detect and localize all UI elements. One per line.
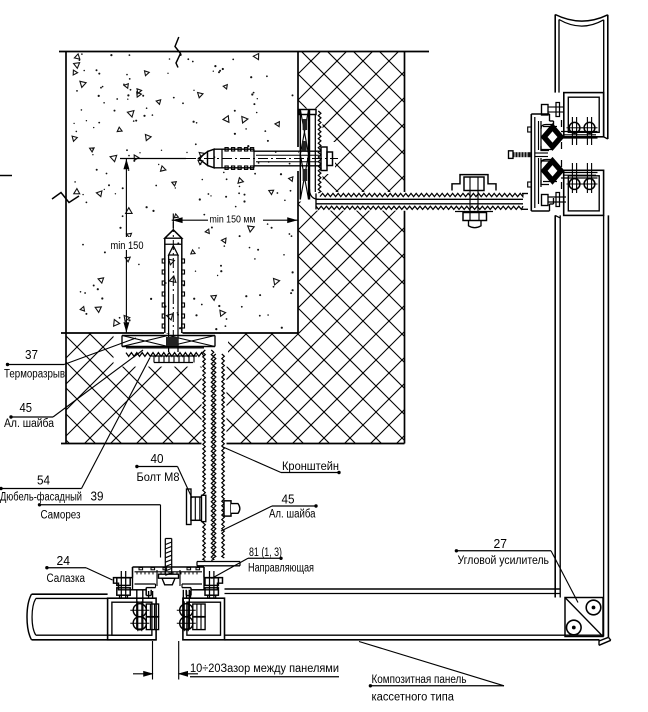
svg-text:45: 45 (282, 492, 295, 507)
svg-text:Ал. шайба: Ал. шайба (269, 509, 316, 521)
svg-text:Болт М8: Болт М8 (137, 472, 180, 484)
svg-text:24: 24 (57, 553, 71, 568)
svg-text:Терморазрыв: Терморазрыв (4, 369, 65, 381)
svg-text:Угловой усилитель: Угловой усилитель (458, 555, 550, 567)
svg-text:Направляющая: Направляющая (248, 563, 314, 575)
svg-text:min 150 мм: min 150 мм (210, 214, 256, 226)
svg-text:Кронштейн: Кронштейн (282, 461, 339, 473)
svg-text:min 150: min 150 (111, 240, 144, 252)
svg-text:10÷20Зазор между панелями: 10÷20Зазор между панелями (190, 663, 339, 675)
svg-text:Саморез: Саморез (41, 510, 81, 522)
svg-text:81 (1, 3): 81 (1, 3) (249, 547, 282, 559)
svg-text:45: 45 (20, 400, 33, 415)
svg-text:кассетного типа: кассетного типа (372, 692, 455, 704)
svg-text:40: 40 (151, 451, 164, 466)
svg-text:37: 37 (25, 347, 38, 362)
svg-text:Композитная панель: Композитная панель (372, 674, 467, 686)
svg-text:Салазка: Салазка (47, 573, 86, 585)
svg-text:Ал. шайба: Ал. шайба (4, 418, 55, 430)
svg-text:27: 27 (494, 536, 508, 551)
svg-text:Дюбель-фасадный: Дюбель-фасадный (0, 492, 82, 504)
svg-text:54: 54 (37, 473, 50, 488)
svg-text:39: 39 (91, 489, 104, 504)
